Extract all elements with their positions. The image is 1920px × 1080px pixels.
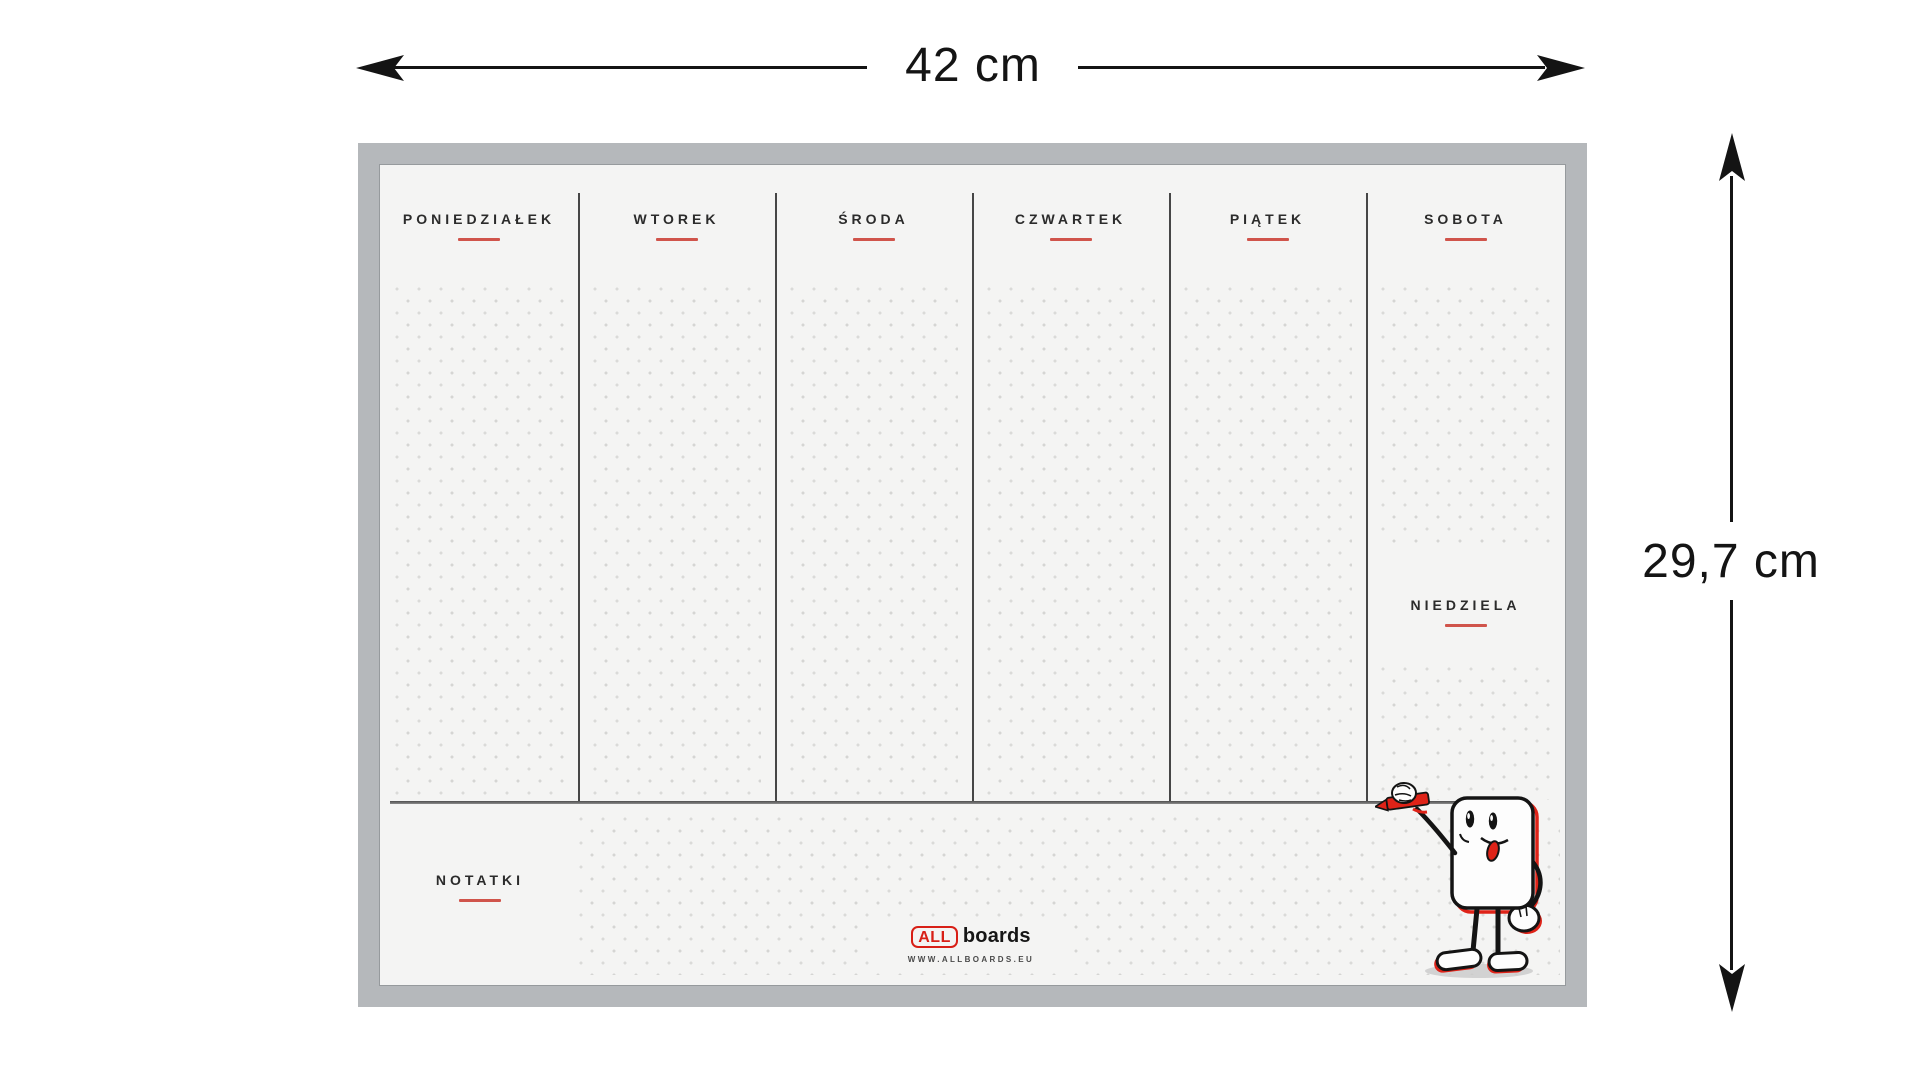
day-column-tuesday: WTOREK xyxy=(578,165,775,802)
notes-header: NOTATKI xyxy=(410,872,550,902)
day-label: WTOREK xyxy=(578,211,775,227)
logo-all-badge: ALL xyxy=(911,926,958,948)
logo-boards-text: boards xyxy=(963,925,1031,948)
day-label: ŚRODA xyxy=(775,211,972,227)
day-column-monday: PONIEDZIAŁEK xyxy=(380,165,578,802)
day-underline xyxy=(853,238,895,241)
day-label: PONIEDZIAŁEK xyxy=(380,211,578,227)
dot-grid-area xyxy=(592,287,761,800)
day-column-wednesday: ŚRODA xyxy=(775,165,972,802)
dot-grid-area xyxy=(1380,287,1551,543)
product-image-weekly-planner-board: 42 cm 29,7 cm PONIEDZIAŁEK WTOREK xyxy=(0,0,1920,1080)
mascot-whiteboard-character xyxy=(1375,763,1553,987)
day-label: SOBOTA xyxy=(1366,211,1565,227)
arrow-right-icon xyxy=(1537,52,1585,84)
allboards-logo: ALL boards WWW.ALLBOARDS.EU xyxy=(871,917,1071,970)
arrow-up-icon xyxy=(1716,133,1748,181)
height-arrow-line-top xyxy=(1730,176,1733,522)
day-underline xyxy=(656,238,698,241)
dot-grid-area xyxy=(1183,287,1352,800)
day-underline xyxy=(458,238,500,241)
notes-separator-line xyxy=(390,801,1462,804)
day-column-friday: PIĄTEK xyxy=(1169,165,1366,802)
planner-board-frame: PONIEDZIAŁEK WTOREK ŚRODA CZWARTEK PIĄTE xyxy=(358,143,1587,1007)
day-label: PIĄTEK xyxy=(1169,211,1366,227)
day-underline xyxy=(1445,238,1487,241)
day-label: NIEDZIELA xyxy=(1366,597,1565,613)
height-arrow-line-bottom xyxy=(1730,600,1733,970)
day-column-thursday: CZWARTEK xyxy=(972,165,1169,802)
dot-grid-area xyxy=(986,287,1155,800)
dot-grid-area xyxy=(789,287,958,800)
width-arrow-line-right xyxy=(1078,66,1545,69)
day-underline xyxy=(1445,624,1487,627)
website-url: WWW.ALLBOARDS.EU xyxy=(871,955,1071,964)
notes-label: NOTATKI xyxy=(410,872,550,888)
dot-grid-area xyxy=(394,287,564,800)
notes-underline xyxy=(459,899,501,902)
height-dimension-label: 29,7 cm xyxy=(1601,532,1861,592)
width-arrow-line-left xyxy=(392,66,867,69)
sunday-header: NIEDZIELA xyxy=(1366,597,1565,627)
width-dimension-label: 42 cm xyxy=(853,36,1093,96)
day-underline xyxy=(1247,238,1289,241)
day-column-saturday-sunday: SOBOTA NIEDZIELA xyxy=(1366,165,1565,802)
arrow-down-icon xyxy=(1716,964,1748,1012)
day-underline xyxy=(1050,238,1092,241)
planner-board-surface: PONIEDZIAŁEK WTOREK ŚRODA CZWARTEK PIĄTE xyxy=(380,165,1565,985)
day-label: CZWARTEK xyxy=(972,211,1169,227)
